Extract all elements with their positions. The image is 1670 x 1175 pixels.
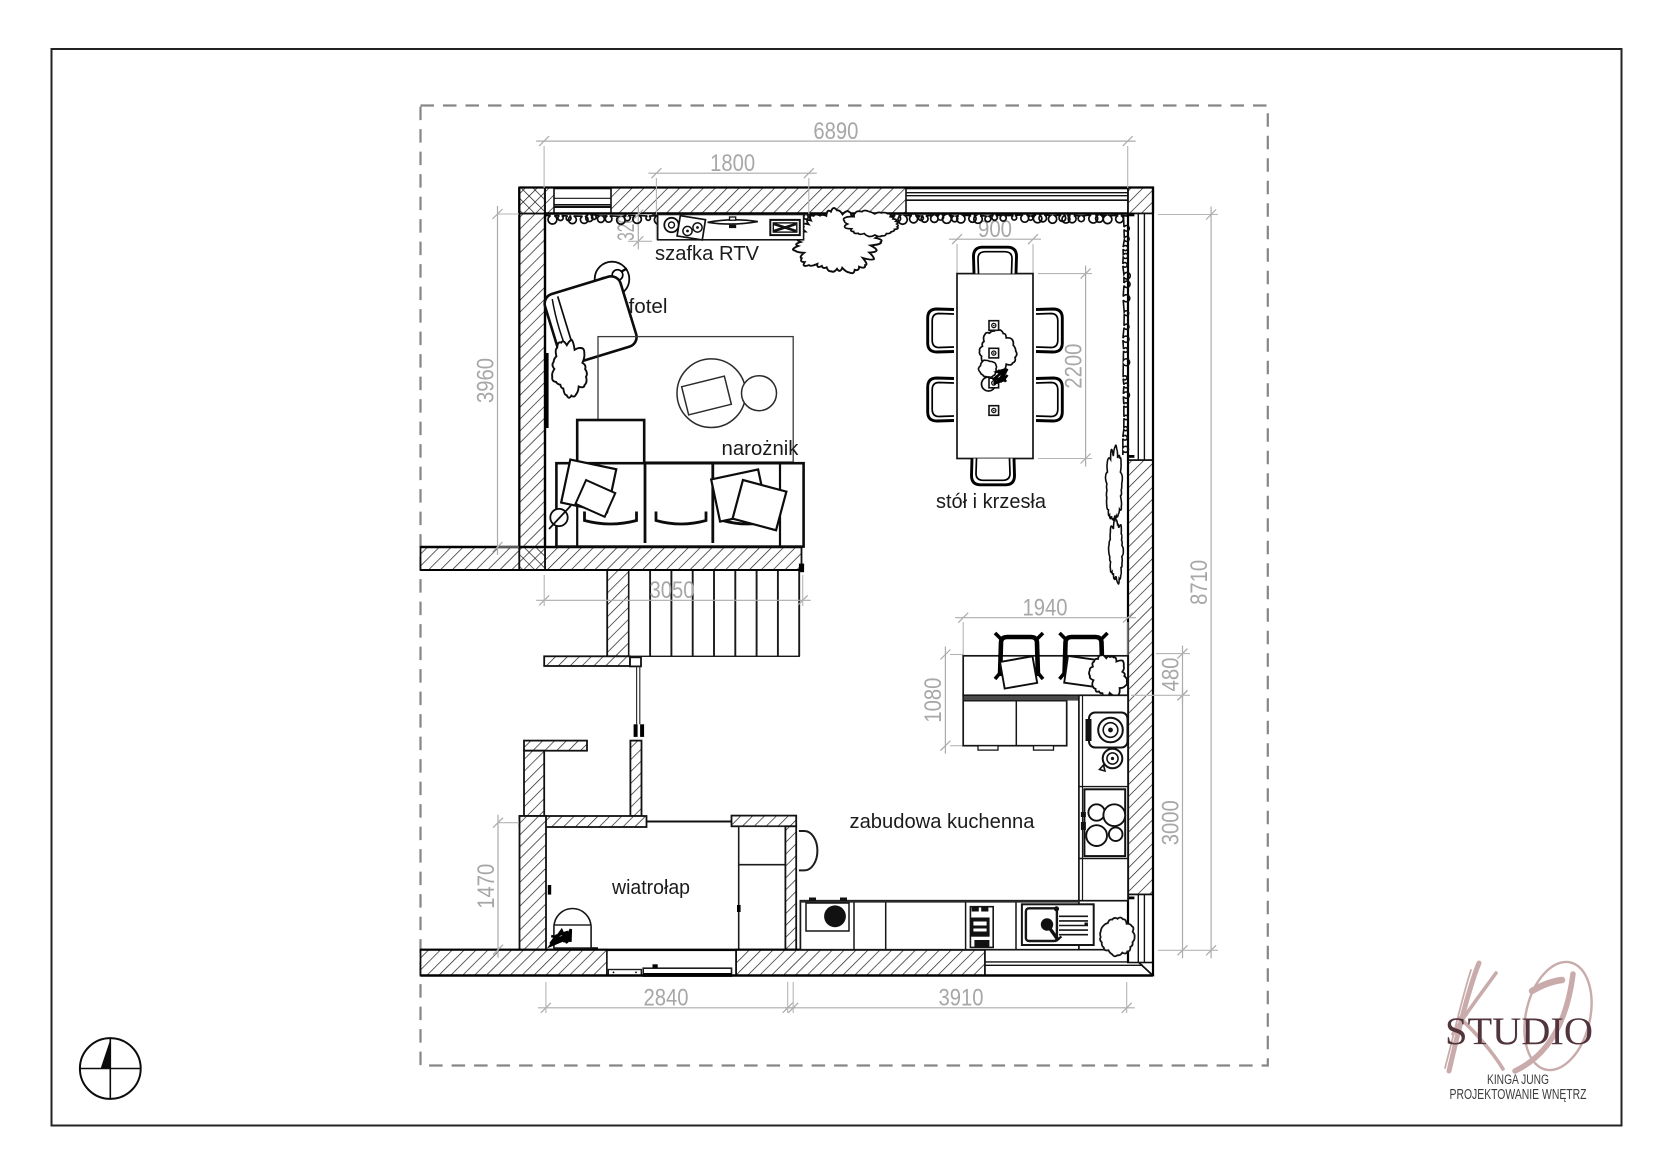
svg-text:480: 480 <box>1157 658 1184 692</box>
svg-text:3050: 3050 <box>650 577 695 604</box>
svg-text:fotel: fotel <box>629 296 668 318</box>
svg-text:6890: 6890 <box>813 118 858 145</box>
svg-text:2200: 2200 <box>1060 344 1087 389</box>
svg-text:STUDIO: STUDIO <box>1445 1010 1593 1053</box>
svg-text:PROJEKTOWANIE WNĘTRZ: PROJEKTOWANIE WNĘTRZ <box>1450 1087 1587 1103</box>
svg-text:KINGA JUNG: KINGA JUNG <box>1487 1072 1549 1087</box>
svg-text:3960: 3960 <box>472 358 499 403</box>
svg-text:3000: 3000 <box>1157 800 1184 845</box>
svg-text:8710: 8710 <box>1186 560 1213 605</box>
svg-text:1940: 1940 <box>1023 595 1068 622</box>
svg-text:zabudowa kuchenna: zabudowa kuchenna <box>850 811 1036 833</box>
svg-text:szafka RTV: szafka RTV <box>655 243 760 265</box>
svg-text:wiatrołap: wiatrołap <box>611 877 690 899</box>
svg-text:1470: 1470 <box>473 864 500 909</box>
svg-text:1800: 1800 <box>710 150 755 177</box>
svg-text:narożnik: narożnik <box>722 438 800 460</box>
svg-text:2840: 2840 <box>644 985 689 1012</box>
svg-text:stół i krzesła: stół i krzesła <box>936 491 1047 513</box>
svg-text:1080: 1080 <box>920 678 947 723</box>
svg-text:3910: 3910 <box>939 985 984 1012</box>
